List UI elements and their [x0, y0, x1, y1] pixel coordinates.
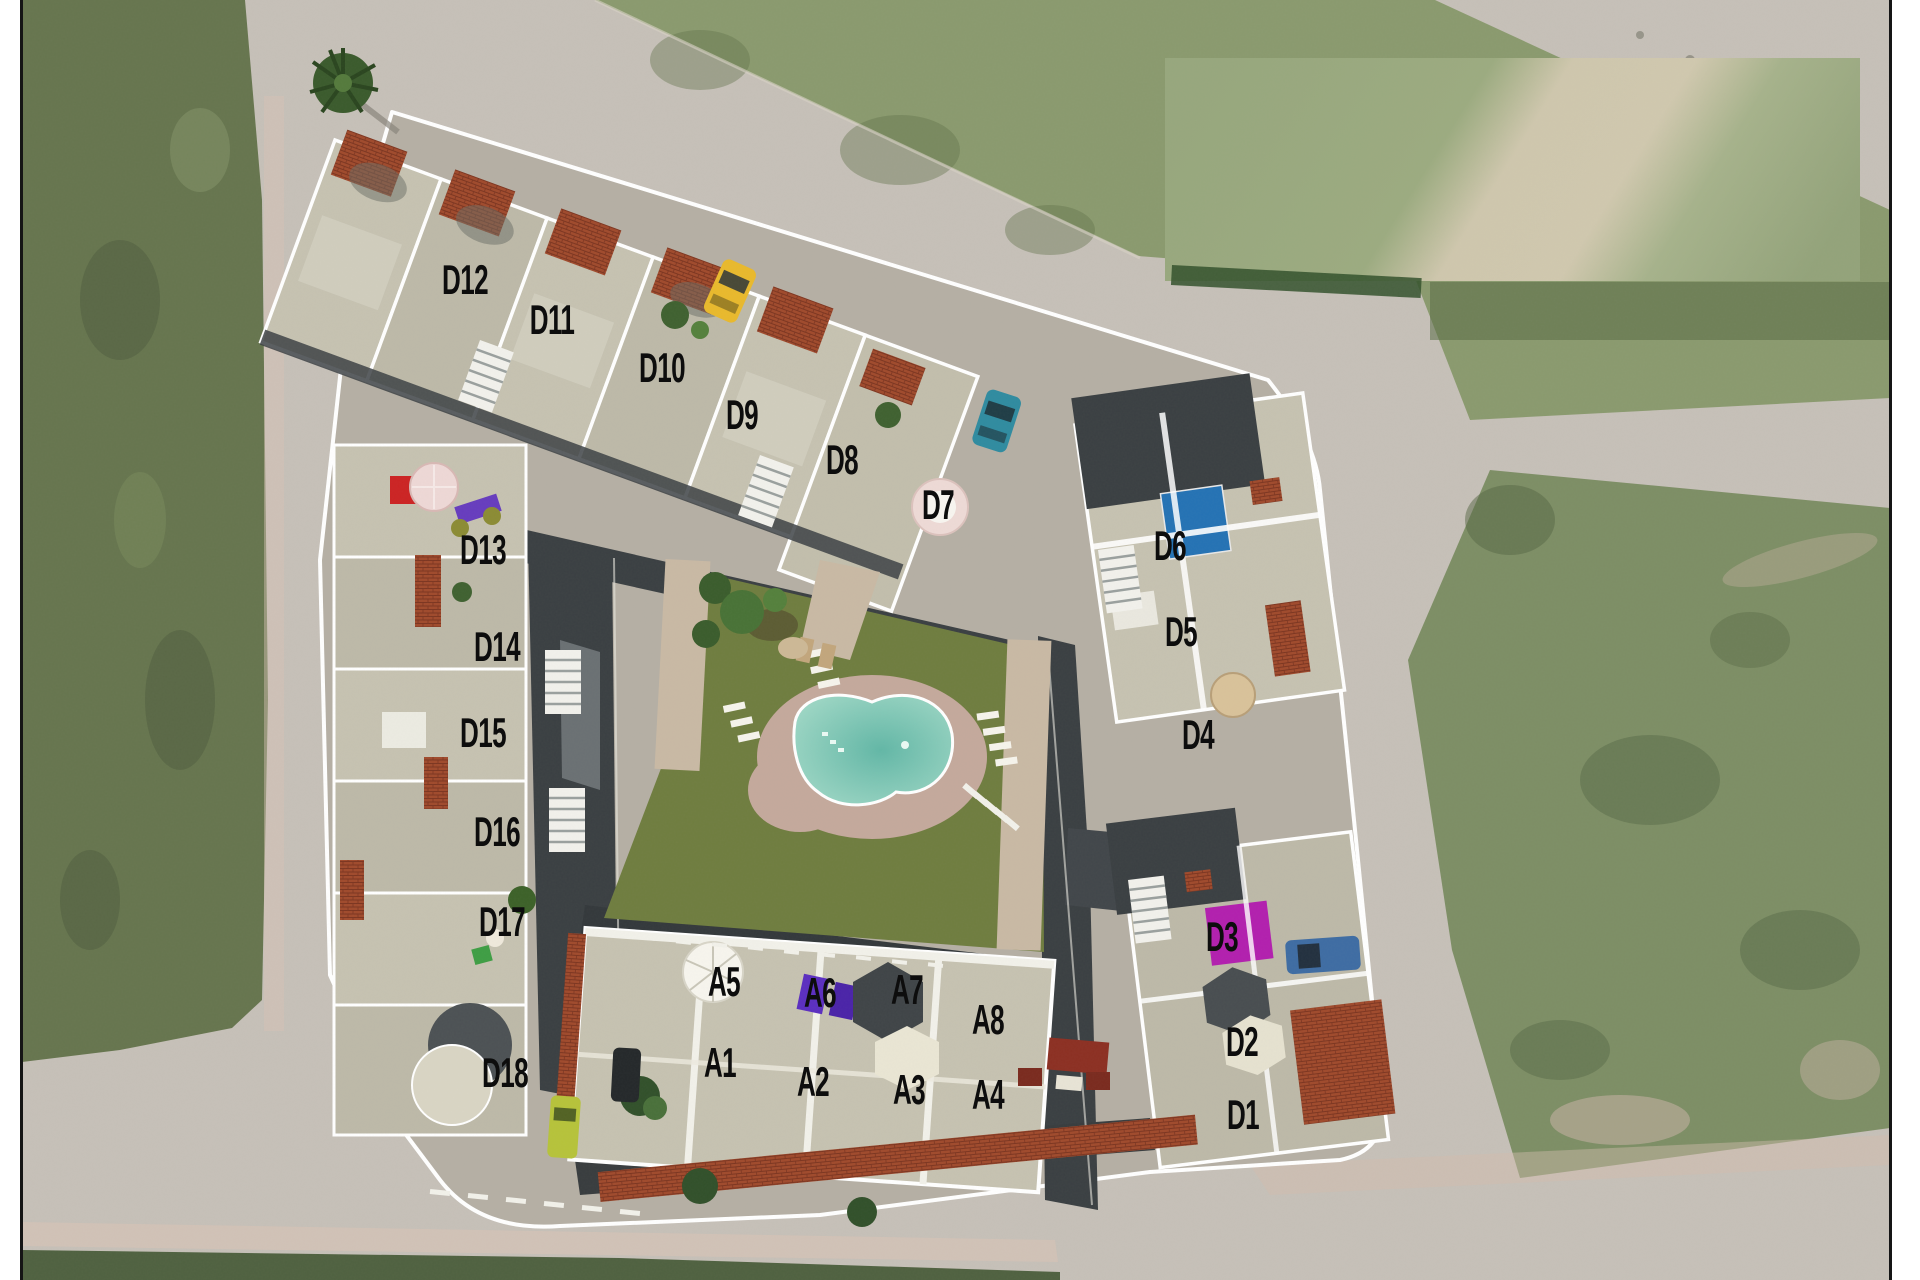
unit-label-a6: A6 [804, 970, 836, 1017]
unit-label-d11: D11 [530, 297, 575, 344]
unit-label-d18: D18 [482, 1050, 528, 1097]
site-plan-map: D1D2D3D4D5D6D7D8D9D10D11D12D13D14D15D16D… [0, 0, 1920, 1280]
unit-label-d15: D15 [460, 710, 506, 757]
unit-label-d1: D1 [1227, 1092, 1259, 1139]
unit-label-d13: D13 [460, 527, 506, 574]
unit-label-d8: D8 [826, 437, 858, 484]
unit-label-d9: D9 [726, 392, 758, 439]
unit-label-a2: A2 [797, 1059, 829, 1106]
unit-label-d4: D4 [1182, 712, 1215, 759]
unit-label-d12: D12 [442, 257, 488, 304]
unit-label-d6: D6 [1154, 523, 1186, 570]
unit-label-a7: A7 [891, 967, 923, 1014]
unit-label-d17: D17 [479, 899, 525, 946]
unit-label-a1: A1 [704, 1040, 736, 1087]
unit-label-a5: A5 [708, 959, 740, 1006]
unit-label-d14: D14 [474, 624, 521, 671]
unit-label-a8: A8 [972, 997, 1004, 1044]
site-plan-screenshot: D1D2D3D4D5D6D7D8D9D10D11D12D13D14D15D16D… [0, 0, 1920, 1280]
unit-label-d16: D16 [474, 809, 520, 856]
unit-label-a4: A4 [972, 1072, 1005, 1119]
unit-label-d2: D2 [1226, 1019, 1258, 1066]
unit-label-d7: D7 [922, 482, 954, 529]
unit-label-d3: D3 [1206, 914, 1238, 961]
unit-label-d10: D10 [639, 345, 685, 392]
unit-label-a3: A3 [893, 1067, 925, 1114]
texture-overlay [22, 0, 1890, 1280]
unit-label-d5: D5 [1165, 609, 1197, 656]
